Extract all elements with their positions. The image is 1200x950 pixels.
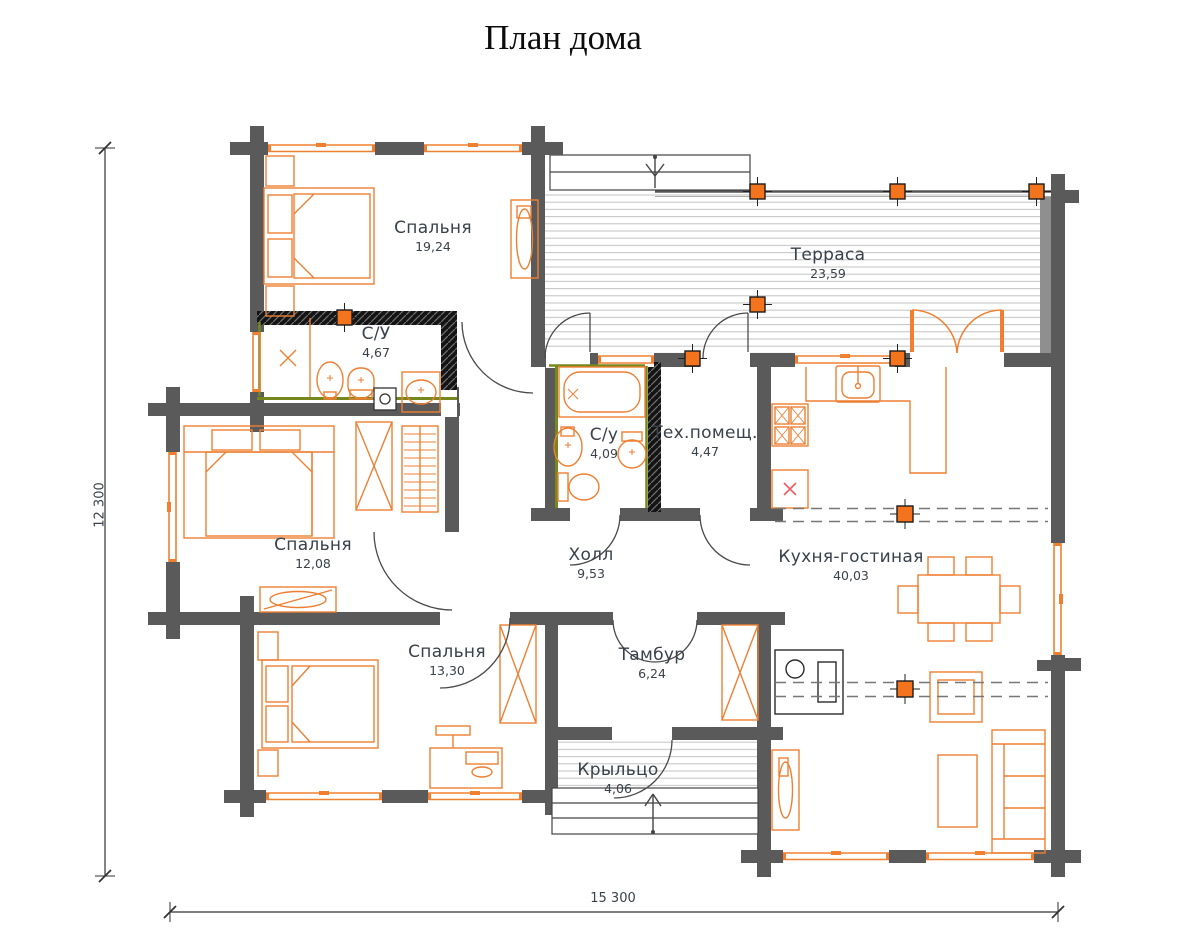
toilet-icon bbox=[558, 473, 599, 501]
bed-icon bbox=[258, 632, 378, 776]
fridge-icon bbox=[772, 470, 808, 508]
room-label-bedroom-2: Спальня 12,08 bbox=[274, 535, 352, 571]
door-arcs bbox=[374, 313, 750, 798]
washbasin-icon bbox=[618, 432, 646, 468]
closet-icon bbox=[402, 426, 438, 512]
wardrobe-icon bbox=[356, 422, 392, 510]
coffee-table-icon bbox=[938, 755, 977, 827]
dimension-label-vertical: 12 300 bbox=[93, 482, 108, 528]
room-label-bath-2: С/у 4,09 bbox=[590, 425, 619, 461]
room-label-hall: Холл 9,53 bbox=[569, 545, 614, 581]
sink-icon bbox=[836, 366, 880, 402]
room-label-terrace: Терраса 23,59 bbox=[791, 245, 866, 281]
bed-icon bbox=[184, 426, 334, 538]
bidet-icon bbox=[317, 362, 343, 399]
tv-stand-icon bbox=[772, 750, 799, 830]
kitchen-counter-icon bbox=[806, 367, 946, 473]
dresser-icon bbox=[260, 587, 336, 612]
sofa-ic icon bbox=[992, 730, 1045, 853]
floor-plan-drawing bbox=[0, 0, 1200, 950]
room-label-bedroom-1: Спальня 19,24 bbox=[394, 218, 472, 254]
desk-icon bbox=[430, 726, 502, 788]
room-label-bath-1: С/У 4,67 bbox=[362, 324, 391, 360]
room-label-kitchen-living: Кухня-гостиная 40,03 bbox=[778, 547, 923, 583]
room-label-tech-room: Тех.помещ. 4,47 bbox=[652, 423, 758, 459]
bed-icon bbox=[264, 156, 374, 316]
bathtub-icon bbox=[559, 367, 645, 417]
floor-plan-page: План дома bbox=[0, 0, 1200, 950]
bidet-icon bbox=[554, 427, 582, 466]
toilet-icon bbox=[348, 368, 374, 399]
shower-icon bbox=[280, 318, 310, 397]
room-label-bedroom-3: Спальня 13,30 bbox=[408, 642, 486, 678]
room-label-tambour: Тамбур 6,24 bbox=[619, 645, 686, 681]
terrace-stairs bbox=[550, 155, 750, 190]
wardrobe-icon bbox=[722, 625, 758, 720]
stove-icon bbox=[772, 404, 808, 446]
room-label-porch: Крыльцо 4,06 bbox=[577, 760, 658, 796]
dimension-label-horizontal: 15 300 bbox=[590, 891, 636, 906]
washing-machine-icon bbox=[374, 388, 396, 410]
wardrobe-icon bbox=[500, 625, 536, 723]
